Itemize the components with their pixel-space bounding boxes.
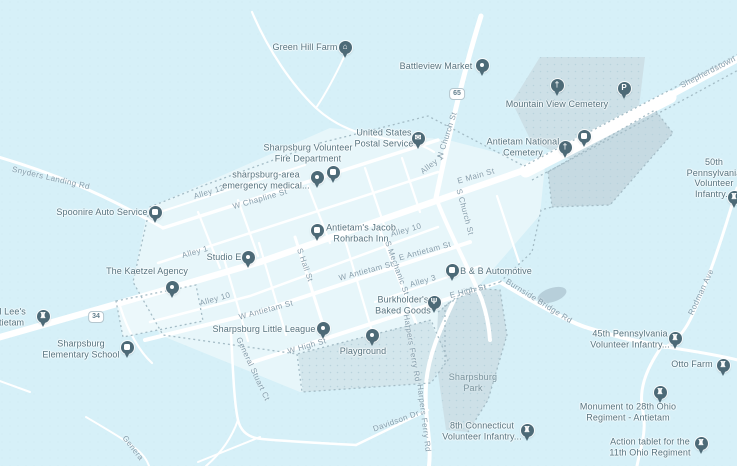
rook-icon: ♜ (730, 193, 737, 201)
green-hill-farm-pin[interactable]: ⌂ (339, 41, 352, 54)
playground-pin[interactable] (366, 329, 379, 342)
rook-icon: ♜ (719, 361, 726, 369)
battleview-market-label[interactable]: Battleview Market (400, 61, 473, 72)
us-postal-service-label[interactable]: United States Postal Service (355, 128, 414, 149)
grave-icon: † (563, 143, 567, 151)
spoonire-auto-service-label[interactable]: Spoonire Auto Service (56, 207, 147, 218)
rook-icon: ♜ (671, 334, 678, 342)
50th-pennsylvania-volunteer-infantry-pin[interactable]: ♜ (728, 191, 737, 204)
dot-icon (370, 333, 375, 338)
mountain-view-cemetery-label[interactable]: Mountain View Cemetery (506, 99, 609, 110)
rook-icon: ♜ (656, 388, 663, 396)
route-shield-34: 34 (88, 311, 104, 323)
mountain-view-cemetery-pin[interactable]: † (551, 79, 564, 92)
square-icon (152, 209, 158, 215)
dot-icon (315, 175, 320, 180)
spoonire-auto-service-pin[interactable] (149, 206, 162, 219)
battleview-market-pin[interactable] (476, 59, 489, 72)
sharpsburg-elementary-school-pin[interactable] (121, 341, 134, 354)
antietam-national-cemetery-pin[interactable]: † (559, 141, 572, 154)
sharpsburg-elementary-school-label[interactable]: Sharpsburg Elementary School (42, 339, 119, 360)
house-icon: ⌂ (343, 43, 348, 51)
action-tablet-11th-ohio-regiment-label[interactable]: Action tablet for the 11th Ohio Regiment (609, 437, 690, 458)
dot-icon (480, 63, 485, 68)
antietam-national-cemetery-label[interactable]: Antietam National Cemetery (487, 137, 560, 158)
45th-pennsylvania-volunteer-infantry-pin[interactable]: ♜ (669, 332, 682, 345)
otto-farm-label[interactable]: Otto Farm (671, 359, 712, 370)
burkholders-baked-goods-pin[interactable]: Ψ (428, 296, 441, 309)
antietams-jacob-rohrbach-inn-label[interactable]: Antietam's Jacob Rohrbach Inn (326, 223, 396, 244)
the-kaetzel-agency-label[interactable]: The Kaetzel Agency (106, 266, 188, 277)
burkholders-baked-goods-label[interactable]: Burkholder's Baked Goods (375, 295, 431, 316)
studio-e-label[interactable]: Studio E (207, 252, 242, 263)
dot-icon (321, 326, 326, 331)
sharpsburg-area-emergency-medical-label[interactable]: sharpsburg-area emergency medical... (222, 170, 310, 191)
sharpsburg-little-league-label[interactable]: Sharpsburg Little League (213, 324, 316, 335)
monument-28th-ohio-regiment-label[interactable]: Monument to 28th Ohio Regiment - Antieta… (580, 402, 676, 423)
rook-icon: ♜ (697, 439, 704, 447)
sharpsburg-little-league-pin[interactable] (317, 322, 330, 335)
studio-e-pin[interactable] (242, 251, 255, 264)
45th-pennsylvania-volunteer-infantry-label[interactable]: 45th Pennsylvania Volunteer Infantry... (590, 329, 669, 350)
rook-icon: ♜ (39, 312, 46, 320)
dot-icon (170, 285, 175, 290)
sharpsburg-volunteer-fire-department-label[interactable]: Sharpsburg Volunteer Fire Department (263, 143, 352, 164)
sharpsburg-area-emergency-medical-pin[interactable] (311, 171, 324, 184)
b-and-b-automotive-pin[interactable] (446, 264, 459, 277)
square-icon (581, 133, 587, 139)
square-icon (314, 227, 320, 233)
8th-connecticut-volunteer-infantry-pin[interactable]: ♜ (521, 424, 534, 437)
8th-connecticut-volunteer-infantry-label[interactable]: 8th Connecticut Volunteer Infantry... (442, 421, 521, 442)
rook-icon: ♜ (523, 426, 530, 434)
map-screenshot: { "map": { "colors": { "background": "#d… (0, 0, 737, 466)
cemetery-info-pin[interactable] (578, 130, 591, 143)
square-icon (330, 169, 336, 175)
b-and-b-automotive-label[interactable]: B & B Automotive (460, 266, 532, 277)
p-icon: P (621, 84, 626, 92)
us-postal-service-pin[interactable]: ✉ (412, 132, 425, 145)
otto-farm-pin[interactable]: ♜ (717, 359, 730, 372)
grave-icon: † (555, 81, 559, 89)
general-lees-antietam-label[interactable]: eral Lee's Antietam (0, 307, 26, 328)
dot-icon (246, 255, 251, 260)
general-lees-antietam-pin[interactable]: ♜ (37, 310, 50, 323)
mail-icon: ✉ (415, 134, 422, 142)
fork-icon: Ψ (431, 298, 437, 306)
area-label-sharpsburg-park: Sharpsburg Park (449, 372, 498, 394)
antietams-jacob-rohrbach-inn-pin[interactable] (311, 224, 324, 237)
the-kaetzel-agency-pin[interactable] (166, 281, 179, 294)
parking-pin[interactable]: P (618, 82, 631, 95)
playground-label[interactable]: Playground (340, 346, 387, 357)
sharpsburg-volunteer-fire-department-pin[interactable] (327, 166, 340, 179)
action-tablet-11th-ohio-regiment-pin[interactable]: ♜ (695, 437, 708, 450)
map-canvas[interactable]: ShepherdstownSnyders Landing RdN Church … (0, 0, 737, 466)
route-shield-65: 65 (449, 88, 465, 100)
square-icon (449, 267, 455, 273)
monument-28th-ohio-regiment-pin[interactable]: ♜ (654, 386, 667, 399)
square-icon (124, 344, 130, 350)
green-hill-farm-label[interactable]: Green Hill Farm (272, 42, 337, 53)
